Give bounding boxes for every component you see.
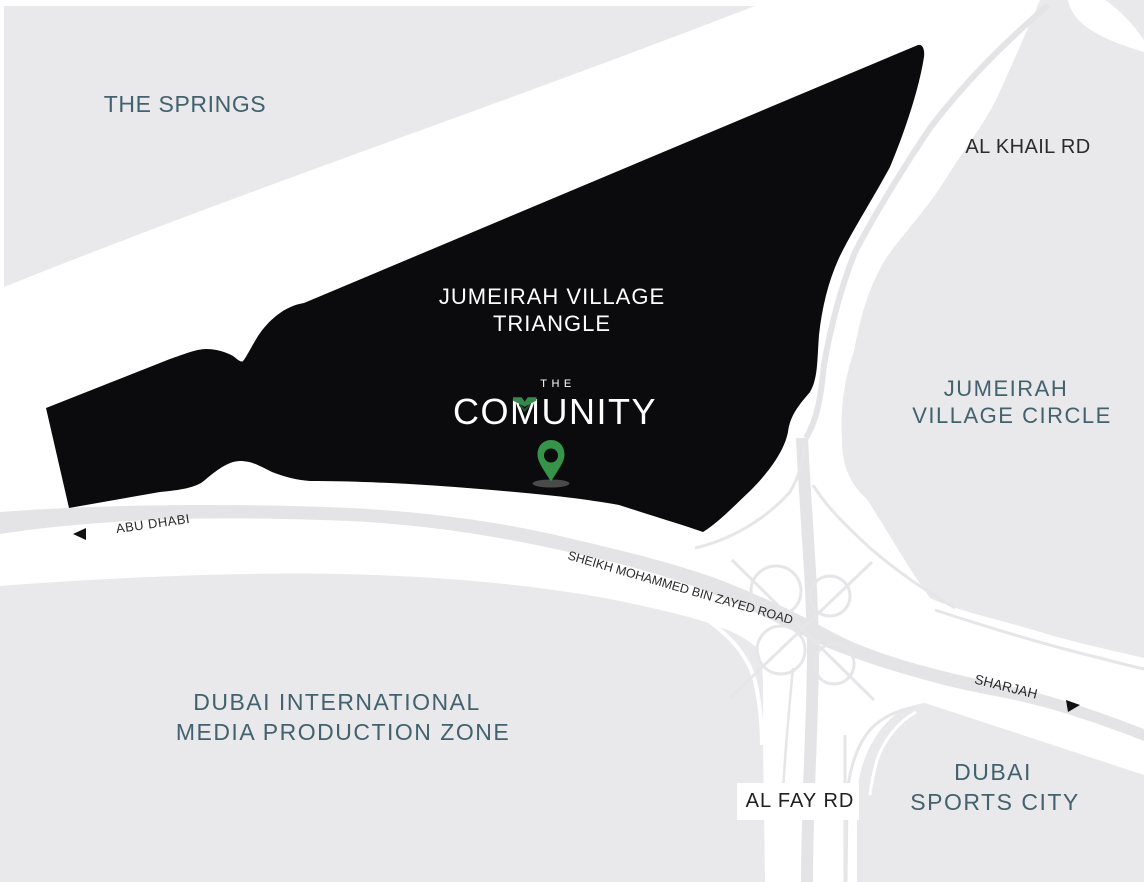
svg-text:SPORTS CITY: SPORTS CITY [910, 789, 1079, 815]
svg-text:DUBAI: DUBAI [954, 759, 1032, 785]
svg-text:DUBAI INTERNATIONAL: DUBAI INTERNATIONAL [193, 689, 481, 715]
svg-text:AL KHAIL RD: AL KHAIL RD [965, 136, 1090, 158]
svg-text:THE: THE [540, 378, 576, 390]
svg-text:AL FAY RD: AL FAY RD [746, 790, 855, 812]
svg-text:THE SPRINGS: THE SPRINGS [104, 91, 267, 117]
svg-text:MEDIA PRODUCTION ZONE: MEDIA PRODUCTION ZONE [176, 719, 510, 745]
svg-text:TRIANGLE: TRIANGLE [493, 311, 611, 336]
svg-text:JUMEIRAH: JUMEIRAH [944, 376, 1068, 401]
svg-text:VILLAGE CIRCLE: VILLAGE CIRCLE [912, 403, 1112, 428]
svg-text:COMUNITY: COMUNITY [453, 391, 657, 432]
svg-text:JUMEIRAH VILLAGE: JUMEIRAH VILLAGE [439, 284, 665, 309]
